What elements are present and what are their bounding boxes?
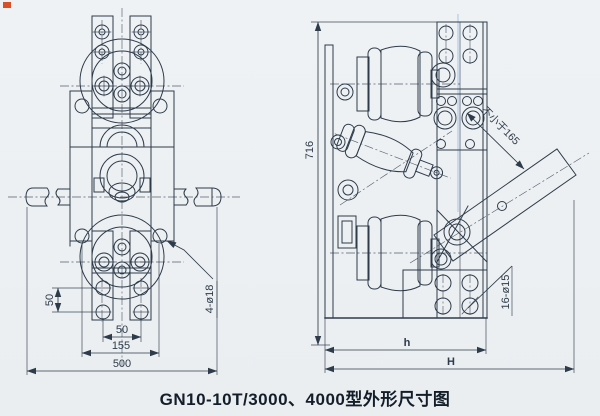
blade-strip — [403, 22, 487, 318]
scan-corner-mark — [3, 2, 11, 8]
drawing-title: GN10-10T/3000、4000型外形尺寸图 — [160, 389, 451, 409]
dim-50-vertical: 50 — [44, 294, 56, 306]
drawing-page: 50 50 155 500 4-ø18 — [0, 0, 600, 416]
side-view: 716 不小于165 16-ø15 h H — [304, 22, 589, 373]
dim-500: 500 — [113, 358, 131, 370]
dim-h: h — [404, 337, 411, 349]
frame-plate — [325, 45, 487, 318]
dim-716: 716 — [304, 141, 316, 159]
dim-H: H — [447, 356, 455, 368]
label-min-clearance: 不小于165 — [479, 104, 522, 147]
front-view: 50 50 155 500 4-ø18 — [8, 8, 240, 375]
label-16-o15: 16-ø15 — [500, 275, 512, 310]
upper-insulator — [330, 46, 460, 122]
label-4-o18: 4-ø18 — [204, 285, 216, 314]
dim-155: 155 — [112, 340, 130, 352]
engineering-drawing: 50 50 155 500 4-ø18 — [0, 0, 600, 416]
dim-50-horizontal: 50 — [116, 324, 128, 336]
